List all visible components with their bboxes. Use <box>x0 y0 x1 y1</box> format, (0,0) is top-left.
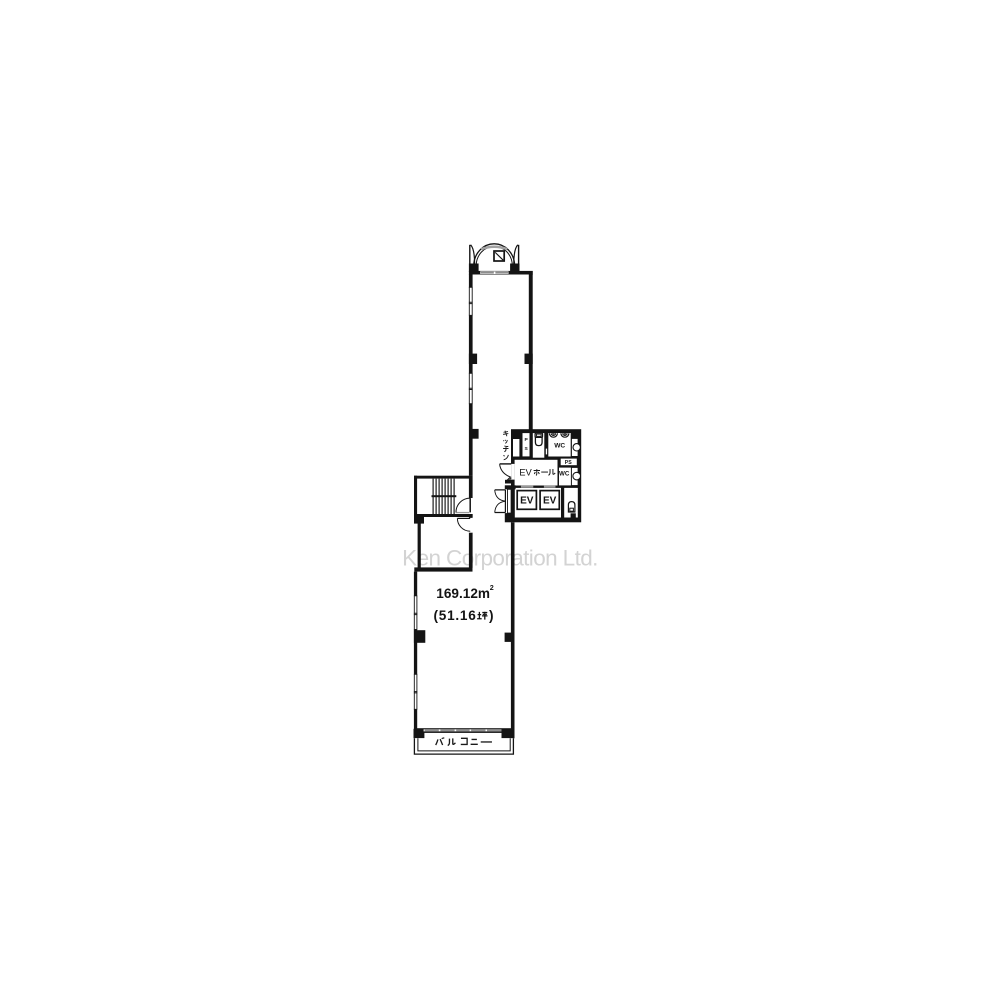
svg-text:2: 2 <box>490 583 494 592</box>
svg-text:EV: EV <box>519 467 532 478</box>
svg-text:(51.16: (51.16 <box>434 608 477 623</box>
svg-text:EV: EV <box>543 496 557 507</box>
svg-text:169.12m: 169.12m <box>436 586 490 601</box>
svg-text:): ) <box>489 608 494 623</box>
svg-text:PS: PS <box>565 460 572 466</box>
svg-text:EV: EV <box>520 496 534 507</box>
svg-text:WC: WC <box>559 471 570 478</box>
svg-text:Ken Corporation Ltd.: Ken Corporation Ltd. <box>402 546 598 571</box>
svg-text:WC: WC <box>554 443 565 450</box>
